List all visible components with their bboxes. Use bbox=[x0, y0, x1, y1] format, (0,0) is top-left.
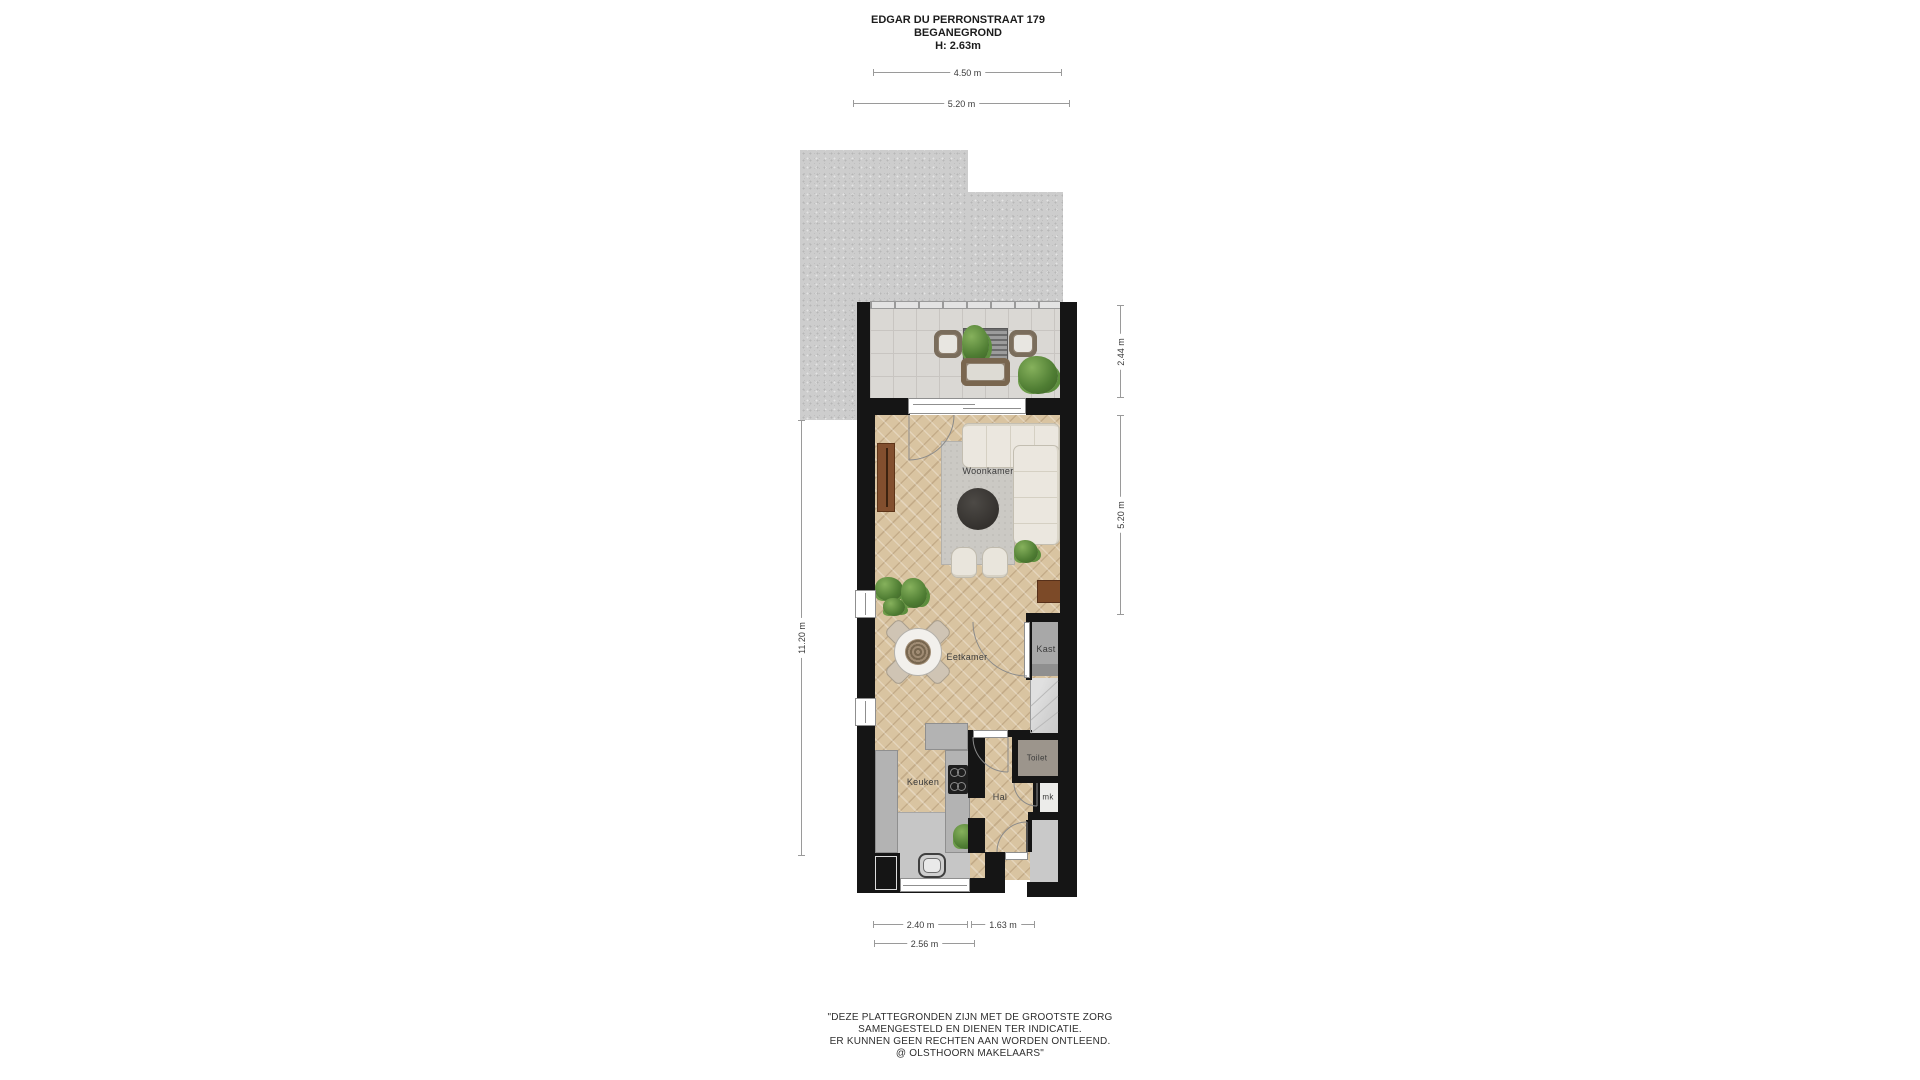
wall bbox=[1028, 812, 1058, 820]
wall bbox=[968, 737, 985, 798]
wall bbox=[1026, 398, 1077, 415]
dining-table bbox=[894, 628, 942, 676]
wall bbox=[1012, 740, 1018, 776]
dim-total-depth: 11.20 m bbox=[801, 420, 802, 856]
title-block: EDGAR DU PERRONSTRAAT 179 BEGANEGROND H:… bbox=[700, 14, 1216, 53]
sideboard bbox=[877, 443, 895, 512]
gravel-side-path bbox=[800, 302, 857, 420]
terrace-fence bbox=[870, 301, 1060, 309]
dim-hall-width: 1.63 m bbox=[971, 924, 1035, 925]
sliding-door bbox=[908, 398, 1026, 414]
wall bbox=[1060, 302, 1077, 400]
address-line: EDGAR DU PERRONSTRAAT 179 bbox=[700, 14, 1216, 27]
wall bbox=[857, 398, 910, 415]
ceiling-height: H: 2.63m bbox=[700, 40, 1216, 53]
wall bbox=[1033, 783, 1040, 812]
gravel-garden bbox=[800, 150, 968, 302]
dining-table-center bbox=[905, 639, 931, 665]
armchair-left bbox=[951, 547, 977, 578]
sofa-right bbox=[1013, 445, 1060, 545]
disclaimer-line: @ OLSTHOORN MAKELAARS" bbox=[712, 1048, 1228, 1060]
disclaimer-line: SAMENGESTELD EN DIENEN TER INDICATIE. bbox=[712, 1024, 1228, 1036]
dining-plant-3 bbox=[883, 598, 905, 616]
disclaimer-line: ER KUNNEN GEEN RECHTEN AAN WORDEN ONTLEE… bbox=[712, 1036, 1228, 1048]
dim-label: 5.20 m bbox=[1116, 497, 1126, 533]
dim-kitchen-width: 2.40 m bbox=[873, 924, 968, 925]
label-woonkamer: Woonkamer bbox=[962, 466, 1013, 476]
disclaimer-block: "DEZE PLATTEGRONDEN ZIJN MET DE GROOTSTE… bbox=[712, 1012, 1228, 1060]
living-plant bbox=[1014, 540, 1038, 563]
window-left-1 bbox=[855, 590, 876, 618]
label-eetkamer: Eetkamer bbox=[947, 652, 988, 662]
dim-terrace-width: 4.50 m bbox=[873, 72, 1062, 73]
armchair-right bbox=[982, 547, 1008, 578]
dim-living-depth: 5.20 m bbox=[1120, 415, 1121, 615]
terrace-chair-left bbox=[934, 330, 962, 358]
stairs-edge bbox=[1030, 680, 1031, 733]
wall bbox=[857, 302, 870, 400]
closet-door-leaf bbox=[1024, 622, 1030, 678]
dim-terrace-depth: 2.44 m bbox=[1120, 305, 1121, 398]
dim-label: 2.56 m bbox=[907, 939, 943, 949]
wall-right-lower bbox=[1058, 613, 1077, 893]
coffee-table bbox=[957, 488, 999, 530]
gravel-garden-right bbox=[968, 192, 1063, 302]
wall bbox=[985, 852, 1005, 893]
porch-floor bbox=[1030, 820, 1058, 882]
wall-right bbox=[1060, 415, 1077, 613]
label-toilet: Toilet bbox=[1027, 754, 1047, 763]
disclaimer-line: "DEZE PLATTEGRONDEN ZIJN MET DE GROOTSTE… bbox=[712, 1012, 1228, 1024]
dim-label: 1.63 m bbox=[985, 920, 1021, 930]
label-mk: mk bbox=[1042, 793, 1053, 802]
label-keuken: Keuken bbox=[907, 777, 939, 787]
dining-plant-2 bbox=[901, 578, 927, 608]
label-hal: Hal bbox=[993, 792, 1007, 802]
front-door bbox=[1005, 852, 1028, 860]
dim-terrace-outer-width: 5.20 m bbox=[853, 103, 1070, 104]
terrace-bush bbox=[1018, 356, 1058, 394]
terrace-chair-right bbox=[1009, 330, 1037, 357]
floor-plan-page: EDGAR DU PERRONSTRAAT 179 BEGANEGROND H:… bbox=[0, 0, 1920, 1080]
wall bbox=[1012, 776, 1058, 783]
stairs bbox=[1030, 678, 1060, 738]
kitchen-counter-top bbox=[925, 723, 968, 750]
wall-left bbox=[857, 415, 875, 893]
kitchen-sink bbox=[918, 853, 946, 878]
kitchen-counter-left bbox=[875, 750, 898, 853]
floor-name: BEGANEGROND bbox=[700, 27, 1216, 40]
label-kast: Kast bbox=[1036, 644, 1055, 654]
appliance-block bbox=[872, 853, 900, 893]
terrace-bench bbox=[961, 358, 1010, 386]
closet-shelf bbox=[1032, 664, 1060, 676]
cooktop bbox=[948, 765, 968, 794]
dim-label: 5.20 m bbox=[944, 99, 980, 109]
wall bbox=[1027, 882, 1077, 897]
window-left-2 bbox=[855, 698, 876, 726]
hall-opening bbox=[973, 730, 1008, 738]
dim-label: 2.40 m bbox=[903, 920, 939, 930]
window-front bbox=[900, 878, 970, 892]
wall bbox=[968, 818, 985, 853]
dim-label: 4.50 m bbox=[950, 68, 986, 78]
dim-front-width: 2.56 m bbox=[874, 943, 975, 944]
dim-label: 2.44 m bbox=[1116, 334, 1126, 370]
dim-label: 11.20 m bbox=[797, 618, 807, 658]
wall bbox=[1026, 820, 1032, 852]
